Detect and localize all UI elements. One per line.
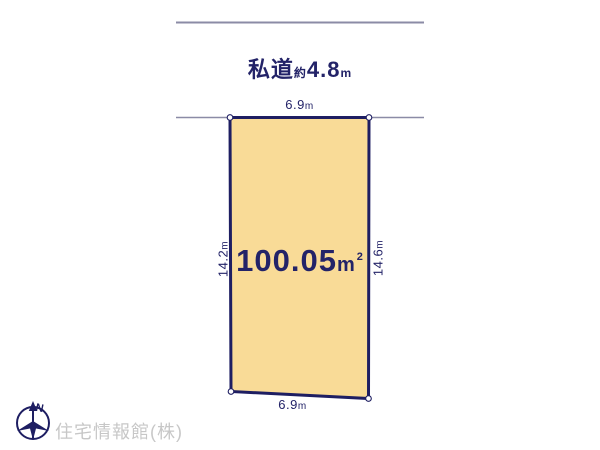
dimension-left-value: 14.2 — [216, 250, 231, 277]
dimension-top-unit: m — [305, 101, 314, 112]
area-value: 100.05 — [236, 243, 337, 278]
dimension-right: 14.6m — [371, 240, 386, 276]
dimension-right-unit: m — [375, 240, 386, 249]
corner-marker-top-right — [366, 115, 372, 121]
corner-marker-bottom-left — [228, 389, 234, 395]
area-unit: m — [337, 254, 356, 276]
area-label: 100.05m2 — [230, 243, 369, 279]
dimension-left-unit: m — [220, 241, 231, 250]
road-width-value: 4.8 — [307, 57, 341, 82]
dimension-bottom: 6.9m — [223, 397, 362, 412]
dimension-bottom-value: 6.9 — [278, 397, 298, 412]
dimension-left: 14.2m — [216, 241, 231, 277]
dimension-bottom-unit: m — [298, 401, 307, 412]
area-unit-superscript: 2 — [357, 251, 364, 263]
company-watermark: 住宅情報館(株) — [55, 418, 183, 444]
corner-marker-bottom-right — [366, 396, 372, 402]
road-name: 私道 — [248, 57, 294, 82]
compass-icon: N — [17, 401, 49, 440]
dimension-right-value: 14.6 — [371, 249, 386, 276]
land-plot-diagram: N 私道約4.8m 6.9m 14.2m 14.6m 100.05m2 6.9m… — [0, 0, 600, 450]
dimension-top-value: 6.9 — [285, 97, 305, 112]
road-width-unit: m — [340, 66, 352, 80]
dimension-top: 6.9m — [230, 97, 369, 112]
north-label: N — [34, 402, 44, 415]
road-approx: 約 — [294, 66, 307, 80]
road-label: 私道約4.8m — [0, 52, 600, 84]
corner-marker-top-left — [227, 115, 233, 121]
